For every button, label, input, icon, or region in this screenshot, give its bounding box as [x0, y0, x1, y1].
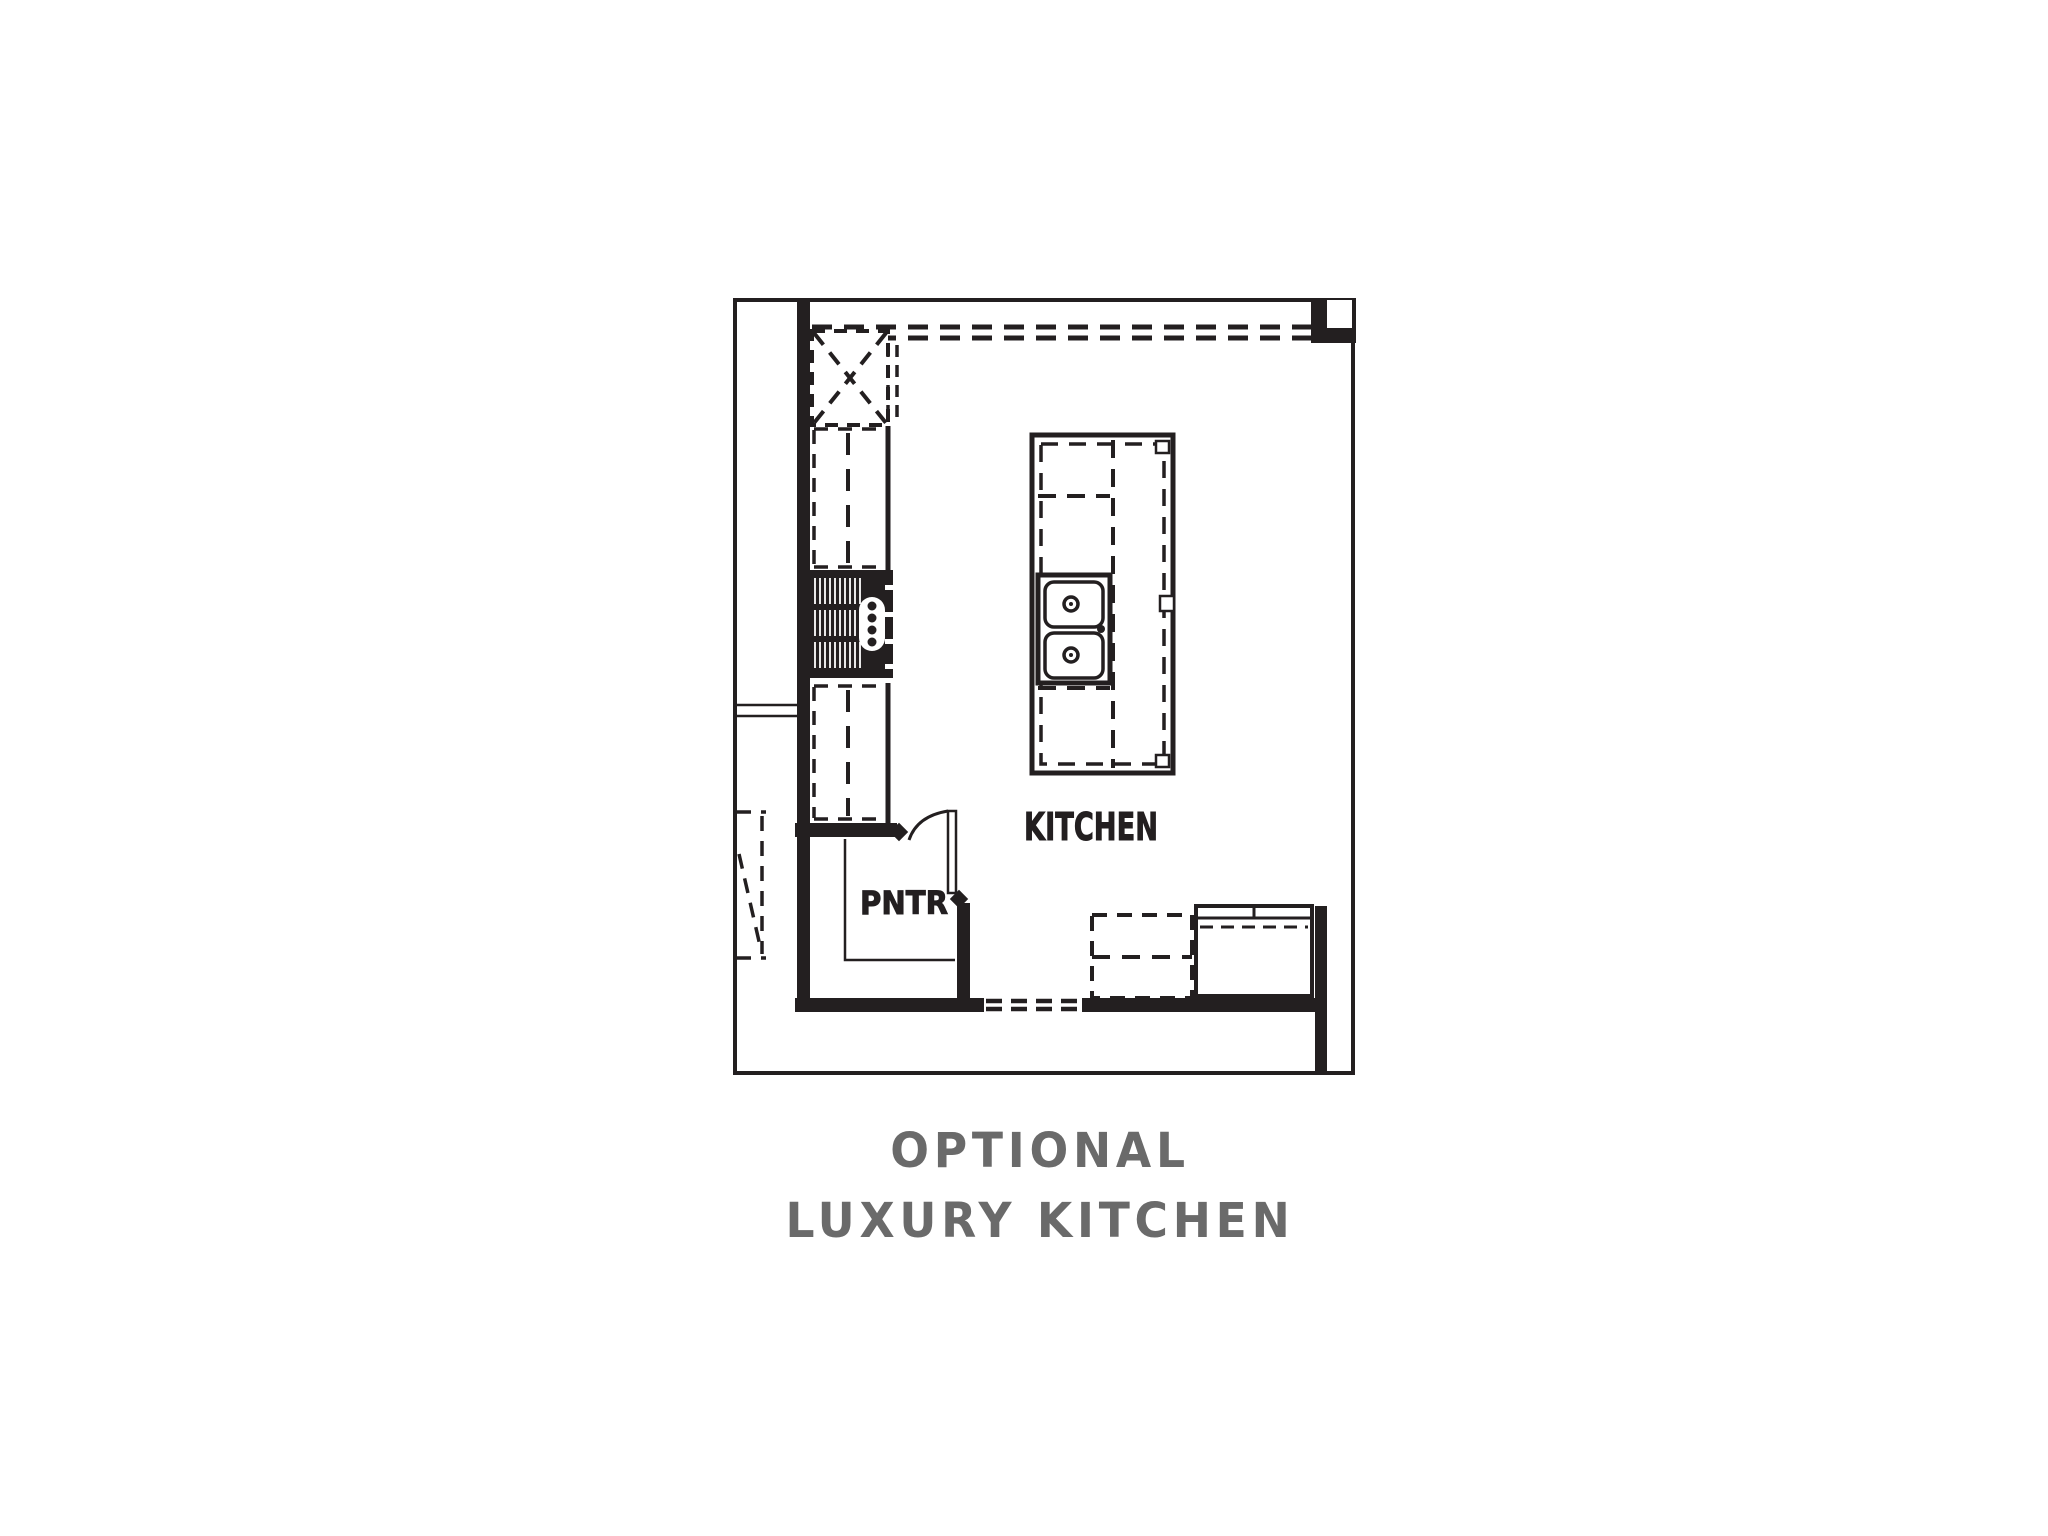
base-cabinet-dashed	[1092, 915, 1192, 998]
floor-plan-figure: KITCHEN PNTR OPTIONAL LUXURY KITCHEN	[0, 0, 2048, 1536]
corner-cabinet-x	[812, 331, 897, 425]
kitchen-label: KITCHEN	[1024, 805, 1158, 849]
caption: OPTIONAL LUXURY KITCHEN	[470, 1116, 1610, 1256]
island-sink	[1038, 575, 1110, 683]
refrigerator	[1196, 906, 1312, 996]
upper-cabinet-run	[814, 426, 888, 570]
lower-cabinet-run	[814, 683, 888, 823]
wall-break-lines	[735, 705, 797, 716]
caption-line-1: OPTIONAL	[470, 1116, 1610, 1186]
caption-line-2: LUXURY KITCHEN	[470, 1186, 1610, 1256]
top-right-wall-post	[1311, 298, 1356, 343]
kitchen-island	[1032, 435, 1174, 773]
door-swing-dashed	[736, 812, 766, 958]
pantry-label: PNTR	[860, 884, 948, 922]
right-interior-wall	[1315, 906, 1327, 1074]
floor-plan-drawing: KITCHEN PNTR	[0, 0, 2048, 1536]
range	[808, 570, 893, 678]
window-opening	[980, 998, 1086, 1012]
